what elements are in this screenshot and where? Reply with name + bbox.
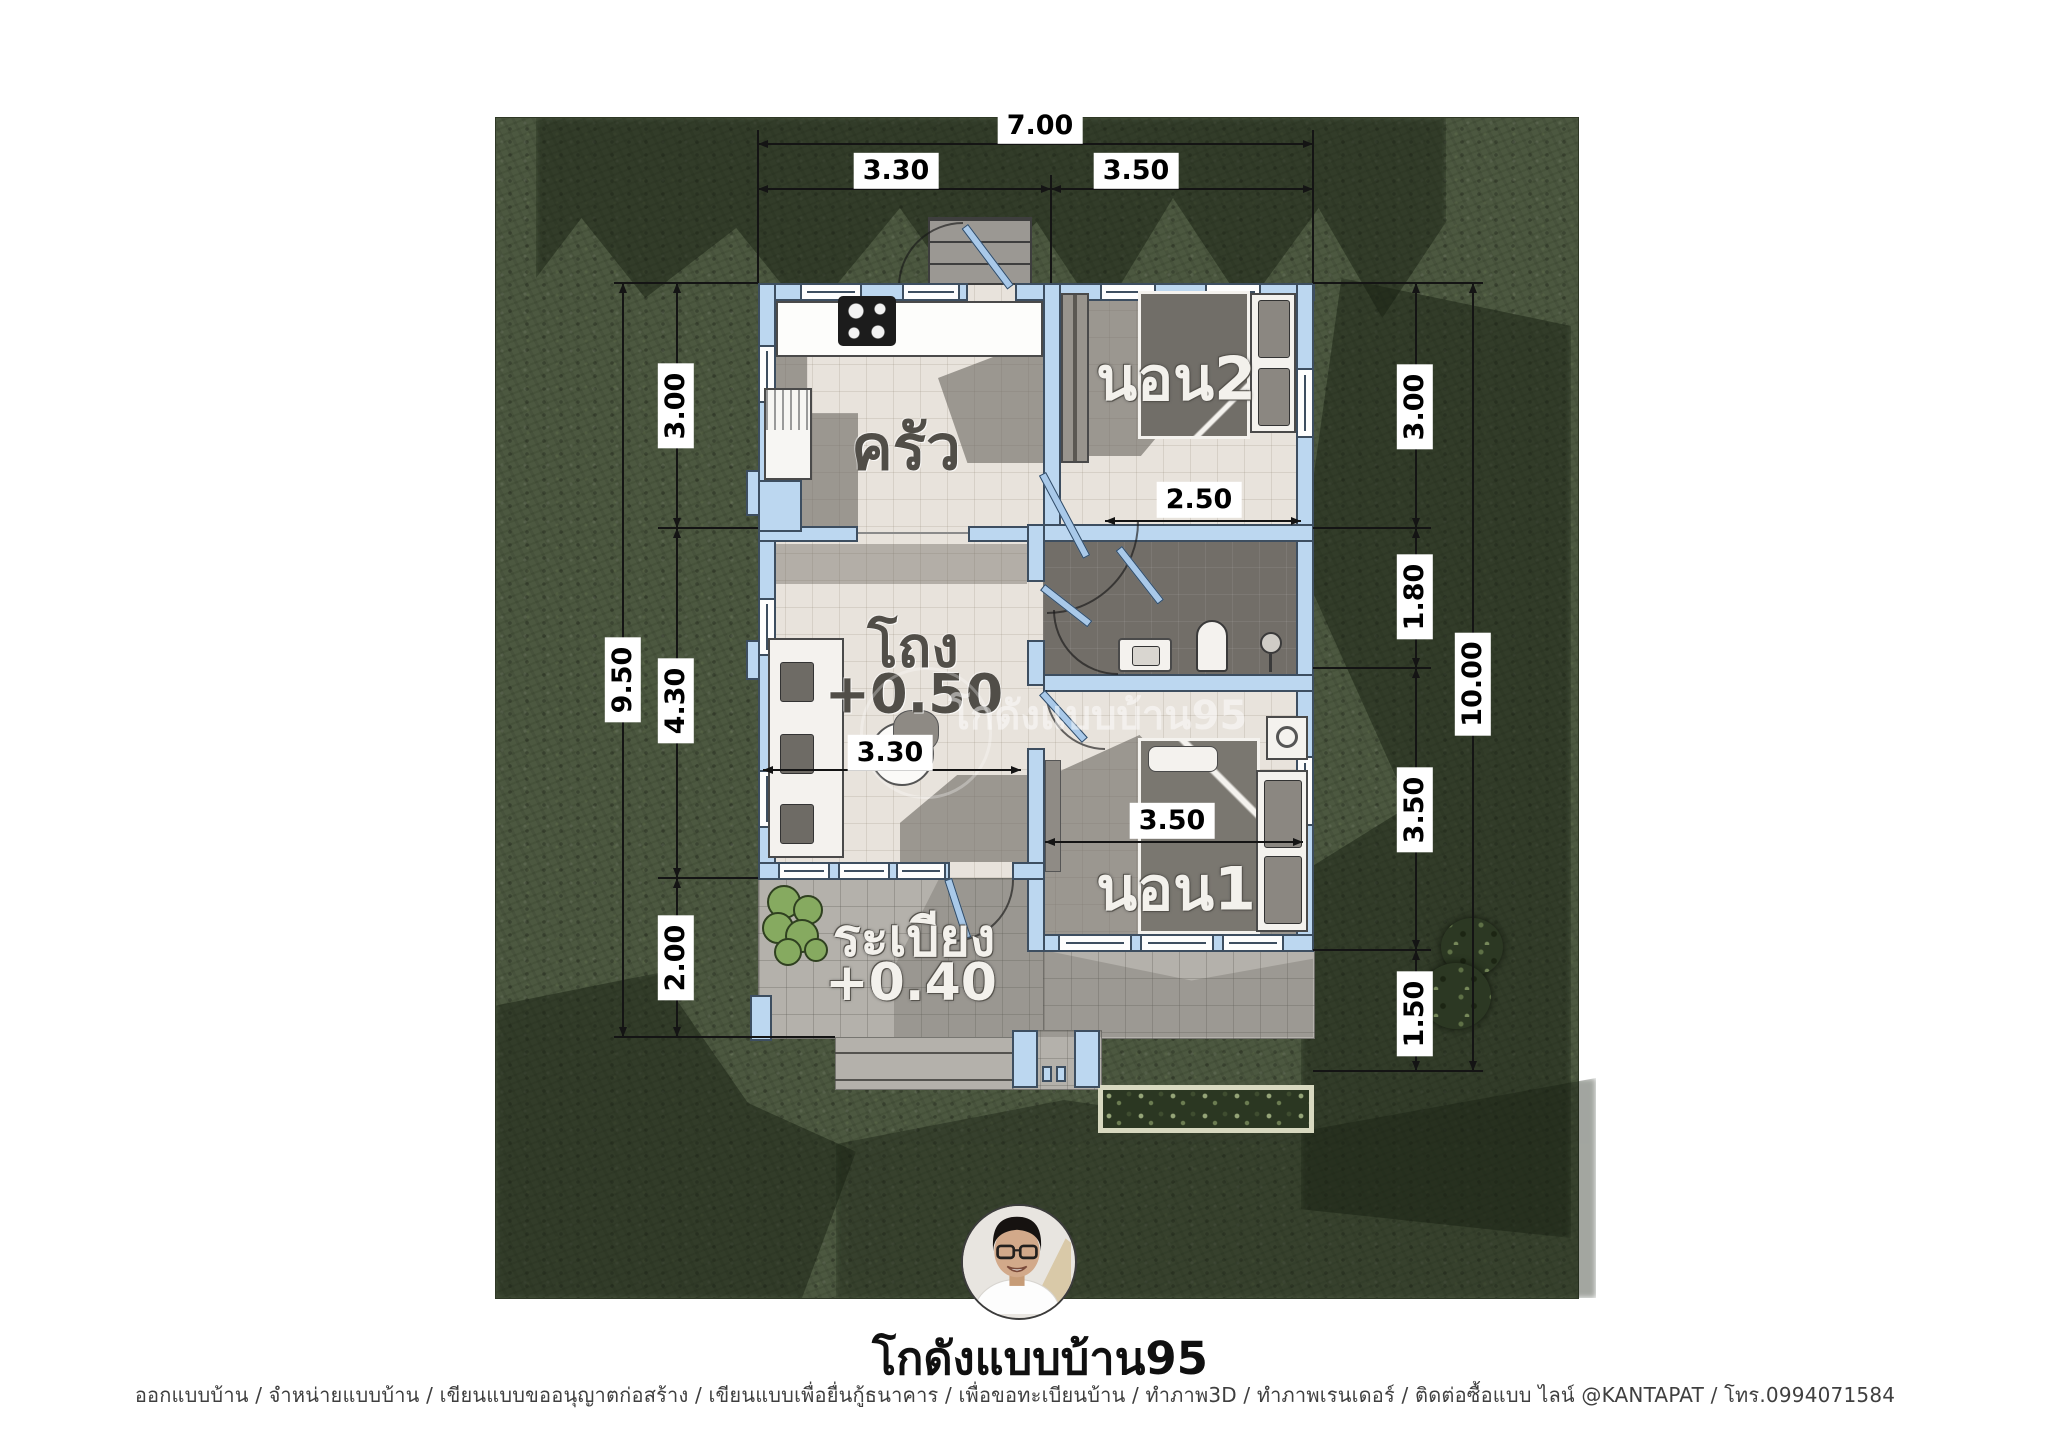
window: [896, 862, 946, 880]
kitchen-counter: [776, 301, 1043, 357]
avatar: [961, 1204, 1077, 1320]
window: [902, 283, 960, 301]
watermark-text: โกดังแบบบ้าน95: [949, 683, 1248, 747]
bedroom1-pillow: [1148, 746, 1218, 772]
toilet: [1196, 620, 1228, 672]
dim-label: 3.50: [1094, 153, 1179, 189]
dim-label: 3.00: [1397, 365, 1433, 450]
avatar-photo: [963, 1206, 1071, 1314]
bathroom-sink-basin: [1132, 646, 1160, 666]
dim-arrow: [673, 878, 681, 888]
dim-label: 3.50: [1397, 768, 1433, 853]
dim-label: 10.00: [1455, 632, 1491, 735]
window: [1296, 368, 1314, 438]
dim-arrow: [1412, 950, 1420, 960]
terrace-steps: [835, 1037, 1017, 1090]
dim-line: [1045, 841, 1303, 843]
footer-credit-line: ออกแบบบ้าน / จำหน่ายแบบบ้าน / เขียนแบบขอ…: [135, 1379, 1895, 1411]
bedroom2-wardrobe-door: [1258, 300, 1290, 358]
dim-label: 2.50: [1157, 482, 1242, 518]
dim-label: 9.50: [605, 638, 641, 723]
dim-line: [758, 188, 1313, 190]
dim-ext: [658, 527, 758, 529]
dim-ext: [1313, 949, 1431, 951]
dim-ext: [757, 130, 759, 283]
dim-arrow: [1412, 668, 1420, 678]
washing-machine-drum: [1276, 726, 1298, 748]
dim-ext: [614, 1036, 835, 1038]
dim-arrow: [1051, 185, 1061, 193]
flower-bed: [1098, 1085, 1314, 1133]
dim-arrow: [619, 283, 627, 293]
dim-arrow: [763, 766, 773, 774]
dim-ext: [1313, 1070, 1483, 1072]
dim-label: 3.50: [1130, 803, 1215, 839]
bedroom2-wall-cabinet: [1061, 293, 1089, 463]
dim-arrow: [1469, 283, 1477, 293]
bedroom2-wardrobe-door: [1258, 368, 1290, 426]
dim-arrow: [1412, 283, 1420, 293]
window: [838, 862, 890, 880]
dim-arrow: [1045, 838, 1055, 846]
shower-stem: [1269, 654, 1272, 672]
sofa-cushion: [780, 804, 814, 844]
dim-arrow: [1011, 766, 1021, 774]
dim-label: 3.30: [854, 153, 939, 189]
dim-arrow: [1469, 1061, 1477, 1071]
dim-ext: [1313, 667, 1431, 669]
dim-arrow: [1105, 517, 1115, 525]
page: ครัว นอน2 โถง +0.50 นอน1 ระเบียง +0.40 โ…: [0, 0, 2048, 1448]
entry-post: [1012, 1030, 1038, 1088]
window: [1222, 934, 1284, 952]
dim-arrow: [1293, 838, 1303, 846]
dim-ext: [1050, 175, 1052, 283]
wall-hall-terrace-post: [1012, 862, 1045, 880]
dim-ext: [1312, 130, 1314, 283]
bedroom1-label: นอน1: [1096, 842, 1256, 937]
window-sill: [746, 640, 760, 680]
dim-arrow: [758, 140, 768, 148]
bedroom1-wardrobe-door: [1264, 856, 1302, 924]
dim-label: 7.00: [998, 108, 1083, 144]
dim-label: 1.80: [1397, 555, 1433, 640]
dim-ext: [658, 877, 758, 879]
dim-arrow: [1412, 528, 1420, 538]
entry-post: [1074, 1030, 1100, 1088]
bedroom2-label: นอน2: [1096, 332, 1256, 427]
window: [778, 862, 830, 880]
dim-arrow: [673, 283, 681, 293]
terrace-corner-post: [750, 995, 772, 1041]
dim-arrow: [673, 528, 681, 538]
dim-label: 3.00: [658, 364, 694, 449]
dim-ext: [614, 282, 758, 284]
window: [1058, 934, 1132, 952]
dim-label: 1.50: [1397, 972, 1433, 1057]
dim-arrow: [758, 185, 768, 193]
window: [1140, 934, 1214, 952]
shower-head: [1260, 632, 1282, 654]
dim-ext: [1313, 282, 1483, 284]
cooktop: [838, 296, 896, 346]
dim-arrow: [1291, 517, 1301, 525]
kitchen-window-box: [758, 480, 802, 532]
wall-hall-bath-seg: [1027, 524, 1045, 582]
dim-label: 2.00: [658, 916, 694, 1001]
cased-opening-line: [858, 532, 968, 534]
sofa-cushion: [780, 662, 814, 702]
hall-shadow: [776, 544, 1027, 584]
dim-ext: [1313, 527, 1431, 529]
entry-step-block: [1042, 1066, 1052, 1082]
dim-line: [1105, 520, 1301, 522]
dim-label: 4.30: [658, 659, 694, 744]
kitchen-sink: [764, 388, 812, 480]
bedroom1-tv-console: [1045, 760, 1061, 872]
sofa-cushion: [780, 734, 814, 774]
wall-hall-bedroom1: [1027, 748, 1045, 952]
dim-label: 3.30: [848, 735, 933, 771]
entry-step-block: [1056, 1066, 1066, 1082]
kitchen-label: ครัว: [851, 399, 961, 497]
terrace-level-label: +0.40: [825, 953, 997, 1013]
